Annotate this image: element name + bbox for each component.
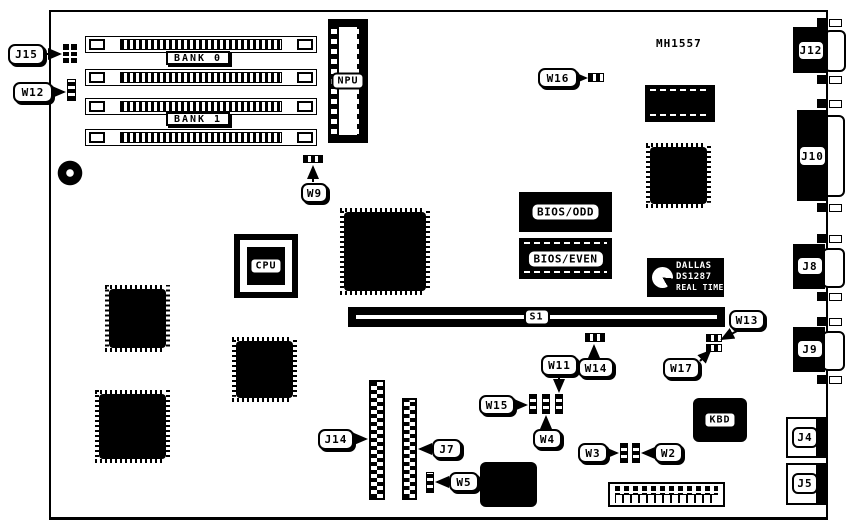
j5-label: J5 <box>792 473 818 494</box>
callout-w15: W15 <box>479 395 515 415</box>
w2-jumper <box>632 443 640 463</box>
w16-jumper <box>588 73 604 82</box>
motherboard-diagram: MH1557 BANK 0 BANK 1 J15 W12 NPU W9 W16 … <box>0 0 849 527</box>
npu-label: NPU <box>331 73 364 90</box>
simm-slot-2 <box>85 69 317 86</box>
bios-even-chip: BIOS/EVEN <box>519 238 612 279</box>
j10-label: J10 <box>798 145 827 167</box>
j9-port-outline <box>822 331 845 371</box>
chip-die <box>344 212 426 291</box>
j14-header <box>369 380 385 500</box>
edge-tab <box>829 235 842 243</box>
qfp-chip-5 <box>95 390 170 463</box>
w14-jumper <box>585 333 605 342</box>
w15-jumper <box>529 394 537 414</box>
chip-die <box>109 289 166 348</box>
j8-port-outline <box>822 248 845 288</box>
bank0-label: BANK 0 <box>166 51 230 65</box>
edge-tab <box>817 99 827 108</box>
kbd-chip: KBD <box>693 398 747 442</box>
bios-odd-chip: BIOS/ODD <box>519 192 612 232</box>
j9-label: J9 <box>796 339 824 359</box>
w5-jumper <box>426 472 434 493</box>
callout-j7: J7 <box>432 439 462 459</box>
j8-label: J8 <box>796 256 824 276</box>
qfp-chip-3 <box>105 285 170 352</box>
callout-w5: W5 <box>449 472 479 492</box>
callout-w16: W16 <box>538 68 578 88</box>
w13-jumper <box>706 334 722 342</box>
w4-jumper <box>542 394 550 414</box>
mounting-hole <box>57 160 83 186</box>
callout-w4: W4 <box>533 429 562 449</box>
edge-tab <box>817 292 827 301</box>
edge-tab <box>829 19 842 27</box>
callout-w11: W11 <box>541 355 578 376</box>
callout-w12: W12 <box>13 82 53 103</box>
edge-tab <box>829 376 842 384</box>
edge-tab <box>829 76 842 84</box>
npu-socket: NPU <box>328 19 368 143</box>
edge-tab <box>817 234 827 243</box>
edge-tab <box>817 317 827 326</box>
callout-w14: W14 <box>578 358 614 378</box>
bios-even-label: BIOS/EVEN <box>527 250 603 267</box>
rtc-chip: DALLAS DS1287 REAL TIME <box>647 258 724 297</box>
callout-w2: W2 <box>654 443 683 463</box>
plcc-chip <box>480 462 537 507</box>
npu-window-top <box>339 27 357 73</box>
edge-tab <box>829 293 842 301</box>
cpu-label: CPU <box>249 258 282 275</box>
edge-tab <box>817 18 827 27</box>
edge-tab <box>829 100 842 108</box>
chip-die <box>650 147 707 204</box>
j7-header <box>402 398 417 500</box>
chip-die <box>236 341 293 398</box>
callout-j14: J14 <box>318 429 354 450</box>
s1-label: S1 <box>523 309 549 326</box>
j4-label: J4 <box>792 427 818 448</box>
callout-w13: W13 <box>729 310 765 330</box>
edge-tab <box>829 204 842 212</box>
rtc-text: DALLAS DS1287 REAL TIME <box>676 261 724 293</box>
rtc-line3: REAL TIME <box>676 283 724 293</box>
w17-jumper <box>706 344 722 352</box>
j15-jumper-block <box>63 44 77 63</box>
qfp-chip-1 <box>646 143 711 208</box>
j12-label: J12 <box>797 40 825 61</box>
clock-icon <box>652 267 673 288</box>
callout-w9: W9 <box>301 183 328 203</box>
kbd-label: KBD <box>703 412 736 429</box>
dip-chip <box>645 85 715 122</box>
edge-tab <box>829 318 842 326</box>
callout-j15: J15 <box>8 44 45 65</box>
simm-pins <box>120 132 282 143</box>
w12-jumper <box>67 79 76 101</box>
bank1-label: BANK 1 <box>166 112 230 126</box>
part-number: MH1557 <box>656 37 702 50</box>
w11-jumper <box>555 394 563 414</box>
qfp-chip-4 <box>232 337 297 402</box>
chip-die <box>99 394 166 459</box>
callout-w3: W3 <box>578 443 608 463</box>
callout-w17: W17 <box>663 358 700 379</box>
simm-pins <box>120 72 282 83</box>
simm-slot-4 <box>85 129 317 146</box>
qfp-chip-2 <box>340 208 430 295</box>
rtc-line2: DS1287 <box>676 272 724 283</box>
simm-pins <box>120 101 282 112</box>
simm-pins <box>120 39 282 50</box>
cpu-socket: CPU <box>234 234 298 298</box>
power-connector <box>608 482 725 507</box>
w9-jumper <box>303 155 323 163</box>
rtc-line1: DALLAS <box>676 261 724 272</box>
s1-slot: S1 <box>348 307 725 327</box>
edge-tab <box>817 375 827 384</box>
bios-odd-label: BIOS/ODD <box>531 204 600 221</box>
npu-window-bottom <box>339 89 357 135</box>
edge-tab <box>817 75 827 84</box>
w3-jumper <box>620 443 628 463</box>
edge-tab <box>817 203 827 212</box>
